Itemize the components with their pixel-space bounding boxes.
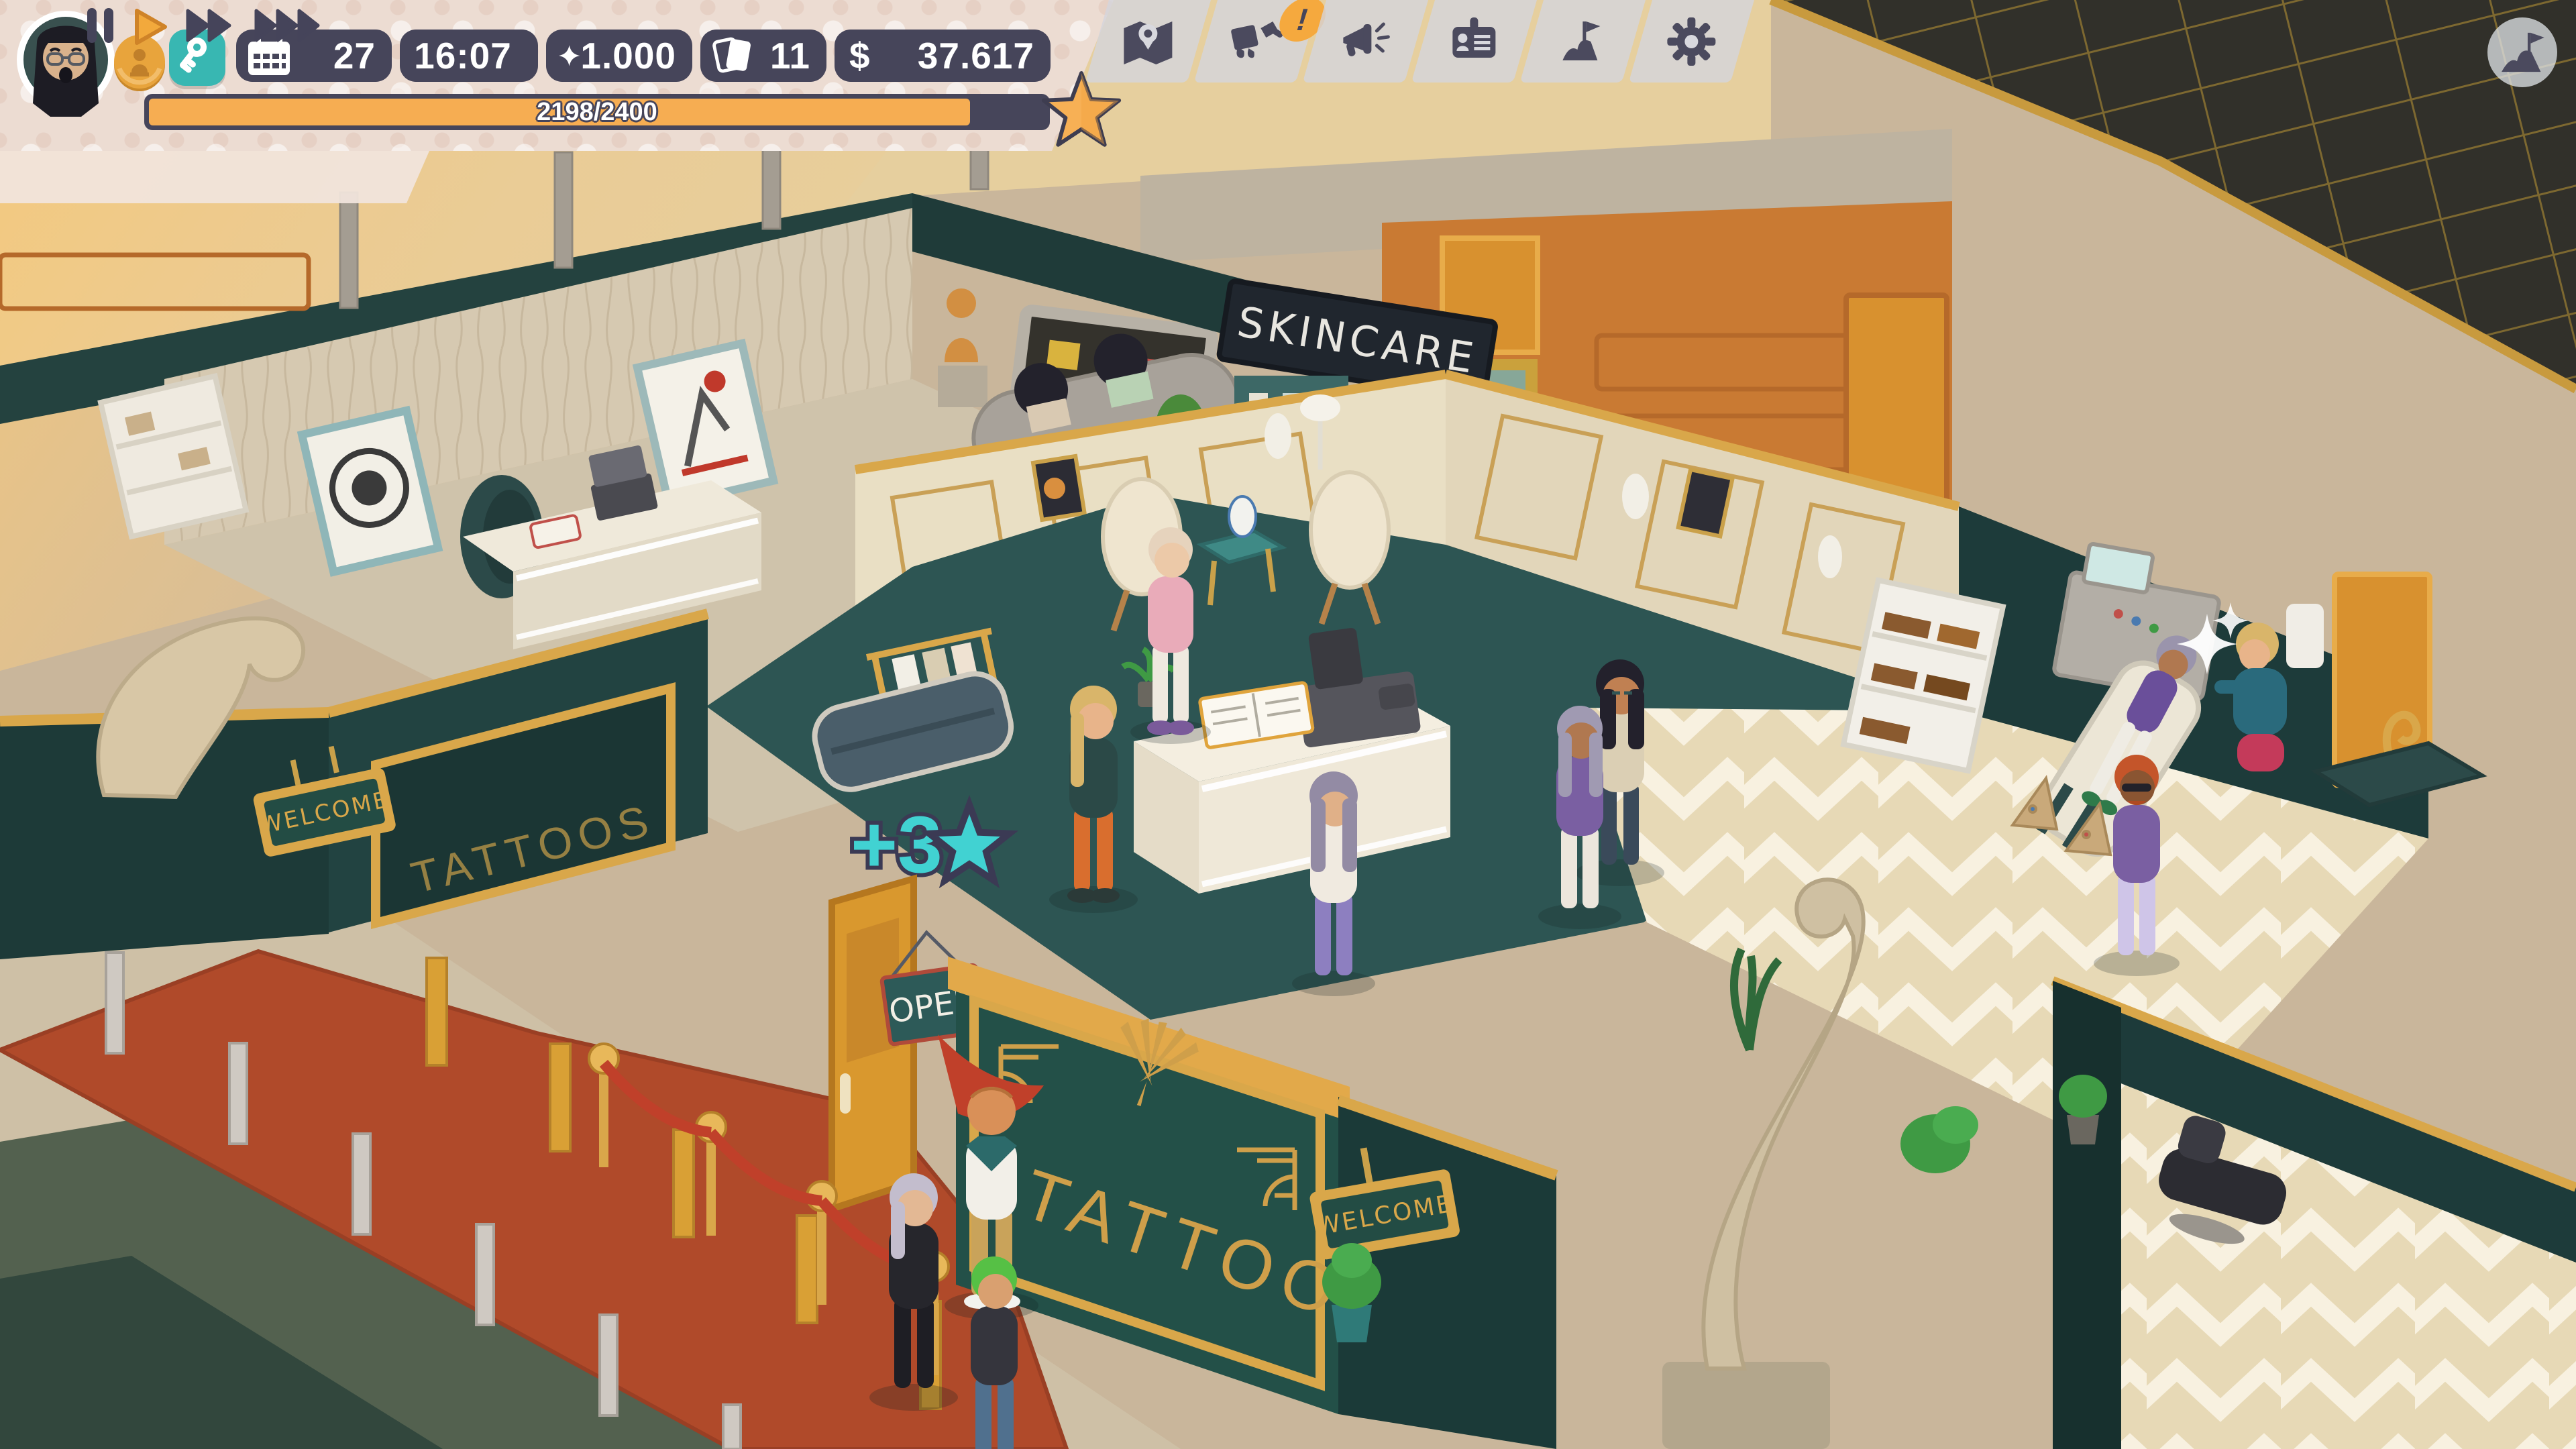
flag-icon (1557, 16, 1608, 67)
toolbar-marketing-button[interactable] (1303, 0, 1428, 83)
play-button[interactable] (133, 7, 170, 49)
money-value: 37.617 (870, 34, 1051, 77)
cards-icon (712, 35, 754, 76)
sparkle-icon (558, 36, 580, 76)
play-icon (133, 7, 170, 47)
card-count-value: 11 (754, 34, 826, 77)
xp-gain-text: +3 (851, 800, 943, 890)
star-currency: 1.000 (546, 30, 692, 82)
currency-symbol: $ (849, 34, 870, 77)
xp-progress-bar: 2198/2400 (144, 94, 1050, 130)
megaphone-icon (1338, 16, 1393, 67)
xp-star-icon (1038, 70, 1124, 156)
game-screen: SKINCARE (0, 0, 2576, 1449)
mountain-flag-icon (2497, 27, 2548, 78)
toolbar-decorate-button[interactable]: ! (1194, 0, 1320, 83)
game-world[interactable]: SKINCARE (0, 0, 2576, 1449)
xp-progress-label: 2198/2400 (149, 99, 1045, 125)
gear-icon (1666, 16, 1717, 67)
fastest-forward-button[interactable] (254, 7, 322, 46)
id-card-icon (1448, 16, 1499, 67)
clock: 16:07 (400, 30, 538, 82)
milestones-button[interactable] (2487, 17, 2557, 87)
speed-control-strip (0, 151, 429, 203)
toolbar-goals-button[interactable] (1520, 0, 1646, 83)
fastest-forward-icon (254, 7, 322, 44)
fast-forward-icon (185, 7, 233, 44)
toolbar-map-button[interactable] (1085, 0, 1211, 83)
map-icon (1121, 16, 1175, 67)
paint-decor-icon (1230, 15, 1283, 68)
time-value: 16:07 (388, 34, 538, 77)
card-count: 11 (700, 30, 826, 82)
pause-button[interactable] (86, 7, 115, 46)
money-counter: $ 37.617 (835, 30, 1051, 82)
toolbar-settings-button[interactable] (1629, 0, 1754, 83)
toolbar-staff-button[interactable] (1411, 0, 1537, 83)
soap-dispenser (2286, 604, 2324, 668)
vase (1229, 496, 1256, 537)
fast-forward-button[interactable] (185, 7, 233, 46)
star-currency-value: 1.000 (580, 34, 692, 77)
top-toolbar: ! (1109, 0, 1754, 83)
pause-icon (86, 7, 115, 44)
